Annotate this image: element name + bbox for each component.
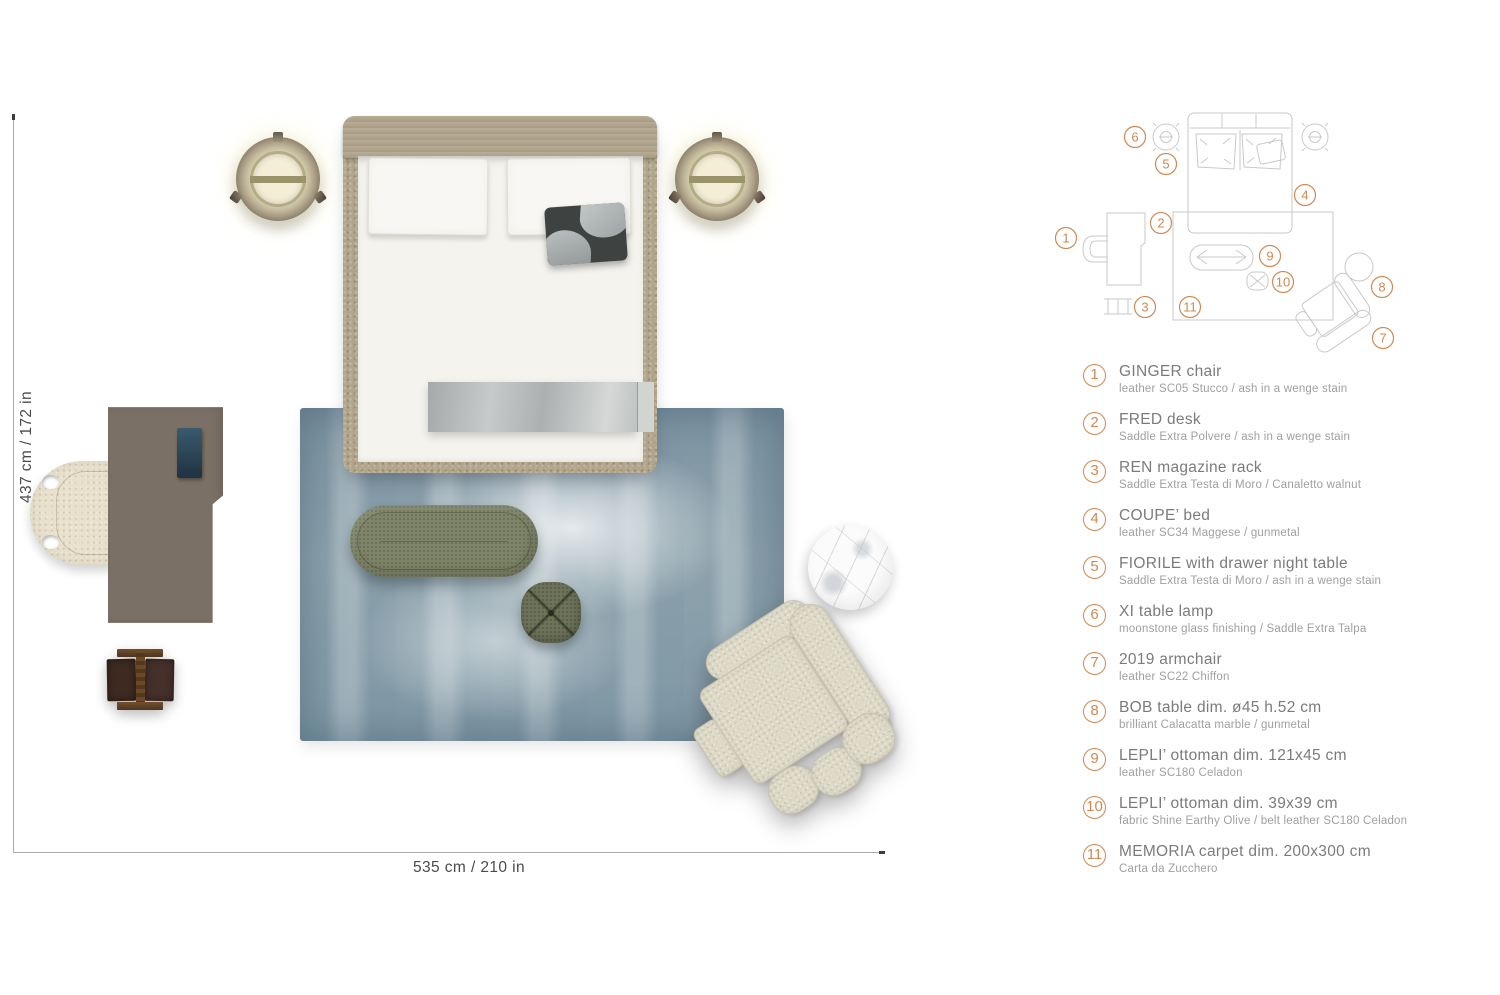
legend-item-subtitle: Saddle Extra Polvere / ash in a wenge st… bbox=[1119, 431, 1350, 444]
plan-badge-4: 4 bbox=[1295, 185, 1316, 206]
night-table-leg bbox=[313, 190, 327, 204]
svg-text:2: 2 bbox=[1157, 216, 1164, 231]
mini-floorplan: 1234567891011 bbox=[1050, 100, 1400, 360]
plan-badge-7: 7 bbox=[1373, 328, 1394, 349]
rack-wood-spine bbox=[136, 649, 145, 710]
legend-item-text: COUPE’ bedleather SC34 Maggese / gunmeta… bbox=[1119, 507, 1300, 540]
svg-text:8: 8 bbox=[1378, 280, 1385, 295]
legend-item-number: 3 bbox=[1083, 460, 1106, 483]
legend-item-subtitle: Carta da Zucchero bbox=[1119, 863, 1371, 876]
rack-leather-pocket bbox=[145, 659, 175, 701]
decor-cushion bbox=[544, 202, 628, 265]
night-table-leg bbox=[752, 190, 766, 204]
plan-badge-3: 3 bbox=[1135, 297, 1156, 318]
vertical-dimension-label: 437 cm / 172 in bbox=[18, 391, 36, 503]
legend-item-subtitle: Saddle Extra Testa di Moro / Canaletto w… bbox=[1119, 479, 1361, 492]
legend-item-text: XI table lampmoonstone glass finishing /… bbox=[1119, 603, 1366, 636]
fiorile-night-table-right bbox=[675, 137, 759, 221]
legend-item-7: 72019 armchairleather SC22 Chiffon bbox=[1083, 651, 1500, 684]
legend-item-text: FRED deskSaddle Extra Polvere / ash in a… bbox=[1119, 411, 1350, 444]
plan-badge-1: 1 bbox=[1056, 228, 1077, 249]
legend-item-11: 11MEMORIA carpet dim. 200x300 cmCarta da… bbox=[1083, 843, 1500, 876]
legend-item-1: 1GINGER chairleather SC05 Stucco / ash i… bbox=[1083, 363, 1500, 396]
legend-item-title: 2019 armchair bbox=[1119, 651, 1230, 668]
legend-item-number: 9 bbox=[1083, 748, 1106, 771]
legend-item-10: 10LEPLI’ ottoman dim. 39x39 cmfabric Shi… bbox=[1083, 795, 1500, 828]
legend-item-subtitle: leather SC05 Stucco / ash in a wenge sta… bbox=[1119, 383, 1347, 396]
legend-item-2: 2FRED deskSaddle Extra Polvere / ash in … bbox=[1083, 411, 1500, 444]
legend-item-number: 2 bbox=[1083, 412, 1106, 435]
svg-text:7: 7 bbox=[1379, 331, 1386, 346]
legend-item-5: 5FIORILE with drawer night tableSaddle E… bbox=[1083, 555, 1500, 588]
legend-item-subtitle: leather SC34 Maggese / gunmetal bbox=[1119, 527, 1300, 540]
lepli-ottoman-small-illustration bbox=[521, 582, 581, 643]
bed-runner bbox=[428, 382, 637, 432]
floorplan-sketch bbox=[1083, 113, 1377, 356]
cushion-petal bbox=[579, 202, 628, 239]
bed-runner-end bbox=[637, 382, 654, 432]
rack-wood-bar bbox=[117, 702, 163, 710]
rack-leather-pocket bbox=[107, 659, 137, 701]
chair-arm-opening bbox=[42, 475, 59, 489]
plan-badge-9: 9 bbox=[1260, 246, 1281, 267]
svg-text:9: 9 bbox=[1266, 249, 1273, 264]
bed-headboard bbox=[343, 116, 657, 158]
lepli-ottoman-large-illustration bbox=[350, 505, 538, 577]
svg-text:3: 3 bbox=[1141, 300, 1148, 315]
ginger-chair-illustration bbox=[30, 461, 116, 565]
svg-text:4: 4 bbox=[1301, 188, 1308, 203]
lamp-handle bbox=[689, 176, 745, 183]
legend-item-text: 2019 armchairleather SC22 Chiffon bbox=[1119, 651, 1230, 684]
legend-item-6: 6XI table lampmoonstone glass finishing … bbox=[1083, 603, 1500, 636]
lamp-handle bbox=[250, 176, 306, 183]
plan-badge-6: 6 bbox=[1125, 127, 1146, 148]
legend-item-number: 1 bbox=[1083, 364, 1106, 387]
fiorile-night-table-left bbox=[236, 137, 320, 221]
legend-item-title: GINGER chair bbox=[1119, 363, 1347, 380]
legend-item-number: 8 bbox=[1083, 700, 1106, 723]
svg-text:10: 10 bbox=[1276, 275, 1290, 290]
chair-arm-opening bbox=[42, 535, 59, 549]
legend: 1GINGER chairleather SC05 Stucco / ash i… bbox=[1083, 363, 1500, 876]
legend-item-4: 4COUPE’ bedleather SC34 Maggese / gunmet… bbox=[1083, 507, 1500, 540]
legend-item-subtitle: brilliant Calacatta marble / gunmetal bbox=[1119, 719, 1322, 732]
night-table-leg bbox=[229, 190, 243, 204]
svg-text:1: 1 bbox=[1062, 231, 1069, 246]
legend-item-number: 10 bbox=[1083, 796, 1106, 819]
legend-item-title: COUPE’ bed bbox=[1119, 507, 1300, 524]
cushion-petal bbox=[544, 229, 592, 265]
plan-badge-10: 10 bbox=[1273, 272, 1294, 293]
legend-item-subtitle: leather SC22 Chiffon bbox=[1119, 671, 1230, 684]
legend-item-text: REN magazine rackSaddle Extra Testa di M… bbox=[1119, 459, 1361, 492]
legend-item-number: 6 bbox=[1083, 604, 1106, 627]
legend-item-9: 9LEPLI’ ottoman dim. 121x45 cmleather SC… bbox=[1083, 747, 1500, 780]
svg-text:6: 6 bbox=[1131, 130, 1138, 145]
legend-item-title: BOB table dim. ø45 h.52 cm bbox=[1119, 699, 1322, 716]
legend-item-subtitle: fabric Shine Earthy Olive / belt leather… bbox=[1119, 815, 1407, 828]
horizontal-dimension-line bbox=[13, 852, 883, 853]
legend-item-number: 11 bbox=[1083, 844, 1106, 867]
horizontal-dimension-label: 535 cm / 210 in bbox=[413, 859, 525, 877]
legend-item-subtitle: moonstone glass finishing / Saddle Extra… bbox=[1119, 623, 1366, 636]
legend-item-subtitle: leather SC180 Celadon bbox=[1119, 767, 1347, 780]
legend-item-text: GINGER chairleather SC05 Stucco / ash in… bbox=[1119, 363, 1347, 396]
legend-item-number: 4 bbox=[1083, 508, 1106, 531]
legend-item-8: 8BOB table dim. ø45 h.52 cmbrilliant Cal… bbox=[1083, 699, 1500, 732]
legend-item-title: XI table lamp bbox=[1119, 603, 1366, 620]
pillow bbox=[368, 157, 489, 235]
fred-desk-illustration bbox=[108, 407, 223, 623]
plan-badge-2: 2 bbox=[1151, 213, 1172, 234]
legend-item-text: LEPLI’ ottoman dim. 121x45 cmleather SC1… bbox=[1119, 747, 1347, 780]
legend-item-number: 7 bbox=[1083, 652, 1106, 675]
vertical-dimension-line bbox=[13, 116, 14, 852]
night-table-leg bbox=[273, 132, 283, 142]
plan-badge-8: 8 bbox=[1372, 277, 1393, 298]
legend-item-title: REN magazine rack bbox=[1119, 459, 1361, 476]
legend-item-title: FIORILE with drawer night table bbox=[1119, 555, 1381, 572]
legend-item-subtitle: Saddle Extra Testa di Moro / ash in a we… bbox=[1119, 575, 1381, 588]
coupe-bed-illustration bbox=[343, 116, 657, 473]
plan-badge-5: 5 bbox=[1156, 154, 1177, 175]
xi-table-lamp bbox=[689, 151, 745, 207]
xi-table-lamp bbox=[250, 151, 306, 207]
furniture-plan-page: 437 cm / 172 in 535 cm / 210 in bbox=[0, 0, 1500, 995]
legend-item-number: 5 bbox=[1083, 556, 1106, 579]
legend-item-title: FRED desk bbox=[1119, 411, 1350, 428]
plan-badge-11: 11 bbox=[1180, 297, 1201, 318]
legend-item-text: FIORILE with drawer night tableSaddle Ex… bbox=[1119, 555, 1381, 588]
legend-item-3: 3REN magazine rackSaddle Extra Testa di … bbox=[1083, 459, 1500, 492]
svg-text:11: 11 bbox=[1183, 300, 1197, 315]
legend-item-title: MEMORIA carpet dim. 200x300 cm bbox=[1119, 843, 1371, 860]
bob-table-illustration bbox=[808, 525, 893, 610]
night-table-leg bbox=[668, 190, 682, 204]
legend-item-title: LEPLI’ ottoman dim. 39x39 cm bbox=[1119, 795, 1407, 812]
legend-item-text: LEPLI’ ottoman dim. 39x39 cmfabric Shine… bbox=[1119, 795, 1407, 828]
legend-item-text: BOB table dim. ø45 h.52 cmbrilliant Cala… bbox=[1119, 699, 1322, 732]
legend-item-text: MEMORIA carpet dim. 200x300 cmCarta da Z… bbox=[1119, 843, 1371, 876]
ren-magazine-rack-illustration bbox=[103, 646, 177, 714]
svg-text:5: 5 bbox=[1162, 157, 1169, 172]
legend-item-title: LEPLI’ ottoman dim. 121x45 cm bbox=[1119, 747, 1347, 764]
desk-notebook bbox=[177, 428, 202, 478]
night-table-leg bbox=[712, 132, 722, 142]
